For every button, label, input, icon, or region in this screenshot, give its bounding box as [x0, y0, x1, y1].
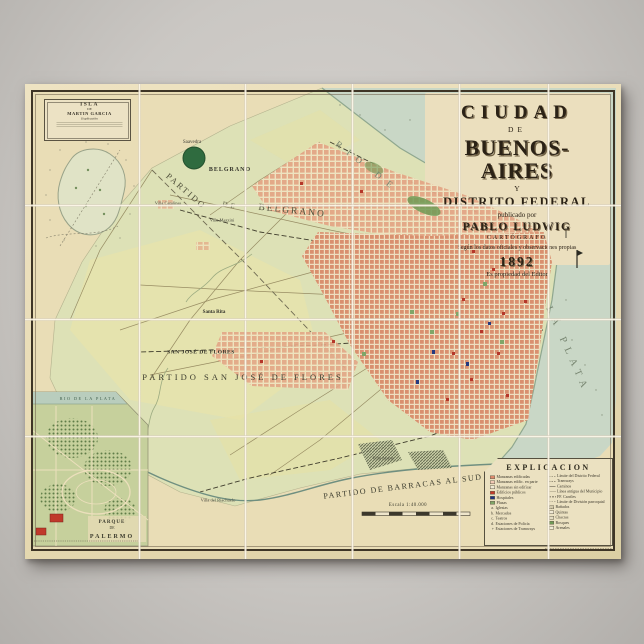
isla-legend-rule	[56, 122, 122, 123]
legend-item-label: Límite de División parroquial	[557, 500, 605, 504]
legend-swatch	[490, 501, 495, 505]
title-name: BUENOS-AIRES	[429, 136, 605, 182]
title-copyright: Es propiedad del Editor	[429, 272, 605, 279]
isla-subtitle: Explicación	[47, 117, 132, 121]
legend-line-sample	[549, 476, 556, 477]
legend-item-label: Bosques	[556, 521, 570, 525]
isla-inset-title-box: ISLA DE MARTIN GARCIA Explicación	[44, 99, 131, 141]
legend-symbol: +	[490, 527, 494, 531]
legend-line-sample	[549, 502, 556, 503]
legend-item-label: Límite del Distrito Federal	[557, 474, 600, 478]
stage: CIUDAD DE BUENOS-AIRES Y DISTRITO FEDERA…	[0, 0, 644, 644]
title-district: DISTRITO FEDERAL	[429, 196, 605, 209]
legend-item: Tramways	[549, 479, 608, 483]
isla-title-name: MARTIN GARCIA	[47, 111, 132, 116]
legend-item-label: Arenales	[556, 526, 570, 530]
title-de: DE	[429, 126, 605, 134]
legend-symbol: c.	[490, 517, 494, 521]
legend-item-label: Hospitales	[497, 496, 514, 500]
title-note: Según los datos oficiales y observacione…	[429, 245, 605, 251]
title-city: CIUDAD	[429, 99, 605, 123]
legend-item: Bañados	[549, 505, 608, 509]
legend-item: Manzanas sin edificar	[490, 485, 549, 489]
legend-swatch	[490, 491, 495, 495]
legend-item: d.Estaciones de Policía	[490, 522, 549, 526]
legend-item-label: Manzanas edific. en parte	[497, 480, 538, 484]
legend-item-label: Bañados	[556, 505, 570, 509]
legend-swatch	[549, 516, 554, 520]
isla-title-de: DE	[47, 107, 132, 111]
legend-item-label: Manzanas edificadas	[497, 475, 530, 479]
legend-item: Caminos	[549, 484, 608, 488]
legend-item: a.Iglesias	[490, 506, 549, 510]
title-published-by: publicado por	[429, 212, 605, 219]
legend-column-1: Manzanas edificadasManzanas edific. en p…	[490, 475, 549, 532]
title-y: Y	[429, 185, 605, 193]
legend-item: Manzanas edificadas	[490, 475, 549, 479]
legend-line-sample	[549, 496, 556, 498]
legend-swatch	[549, 511, 554, 515]
legend-item-label: Manzanas sin edificar	[497, 485, 532, 489]
legend-item-label: Línea antigua del Municipio	[557, 490, 602, 494]
legend-item-label: Iglesias	[496, 506, 508, 510]
isla-title: ISLA	[47, 101, 132, 107]
legend-item-label: Quintas	[556, 510, 568, 514]
map-title-block: CIUDAD DE BUENOS-AIRES Y DISTRITO FEDERA…	[429, 99, 605, 279]
legend-symbol: a.	[490, 506, 494, 510]
legend-item-label: Mercados	[496, 511, 512, 515]
legend-swatch	[549, 526, 554, 530]
legend-swatch	[490, 486, 495, 490]
legend-item: FF. Carriles	[549, 495, 608, 499]
title-year: 1892	[429, 255, 605, 269]
legend-item-label: FF. Carriles	[557, 495, 576, 499]
legend-item: Arenales	[549, 526, 608, 530]
legend-item-label: Edificios públicos	[497, 491, 526, 495]
isla-legend-rule	[56, 126, 122, 127]
title-author-role: CARTÓGRAFO	[429, 235, 605, 241]
legend-symbol: d.	[490, 522, 494, 526]
legend-swatch	[549, 521, 554, 525]
legend-swatch	[490, 475, 495, 479]
legend-item: Línea antigua del Municipio	[549, 490, 608, 494]
title-author: PABLO LUDWIG	[429, 221, 605, 233]
legend-line-sample	[549, 481, 556, 482]
legend-item-label: Estaciones de Policía	[496, 522, 530, 526]
legend-item: Quintas	[549, 510, 608, 514]
legend-item: Plazas	[490, 501, 549, 505]
legend-item: +Estaciones de Tramways	[490, 527, 549, 531]
legend-item: Hospitales	[490, 496, 549, 500]
legend-title: EXPLICACION	[485, 463, 612, 472]
legend-item-label: Tramways	[557, 479, 574, 483]
legend-symbol: b.	[490, 511, 494, 515]
legend-item: Límite del Distrito Federal	[549, 474, 608, 478]
legend-item-label: Caminos	[557, 484, 571, 488]
legend-item-label: Plazas	[497, 501, 507, 505]
legend-box: EXPLICACION Manzanas edificadasManzanas …	[484, 458, 613, 546]
legend-item-label: Estaciones de Tramways	[496, 527, 536, 531]
legend-item: c.Teatros	[490, 517, 549, 521]
legend-item: b.Mercados	[490, 511, 549, 515]
legend-swatch	[490, 480, 495, 484]
legend-item-label: Teatros	[496, 517, 508, 521]
legend-item: Bosques	[549, 521, 608, 525]
legend-line-sample	[549, 491, 556, 492]
legend-line-sample	[549, 486, 556, 487]
legend-swatch	[549, 505, 554, 509]
isla-legend-rule	[56, 124, 122, 125]
legend-item: Manzanas edific. en parte	[490, 480, 549, 484]
legend-swatch	[490, 496, 495, 500]
legend-item-label: Chacras	[556, 516, 569, 520]
legend-column-2: Límite del Distrito FederalTramwaysCamin…	[549, 474, 608, 531]
legend-item: Chacras	[549, 516, 608, 520]
legend-item: Límite de División parroquial	[549, 500, 608, 504]
legend-item: Edificios públicos	[490, 491, 549, 495]
